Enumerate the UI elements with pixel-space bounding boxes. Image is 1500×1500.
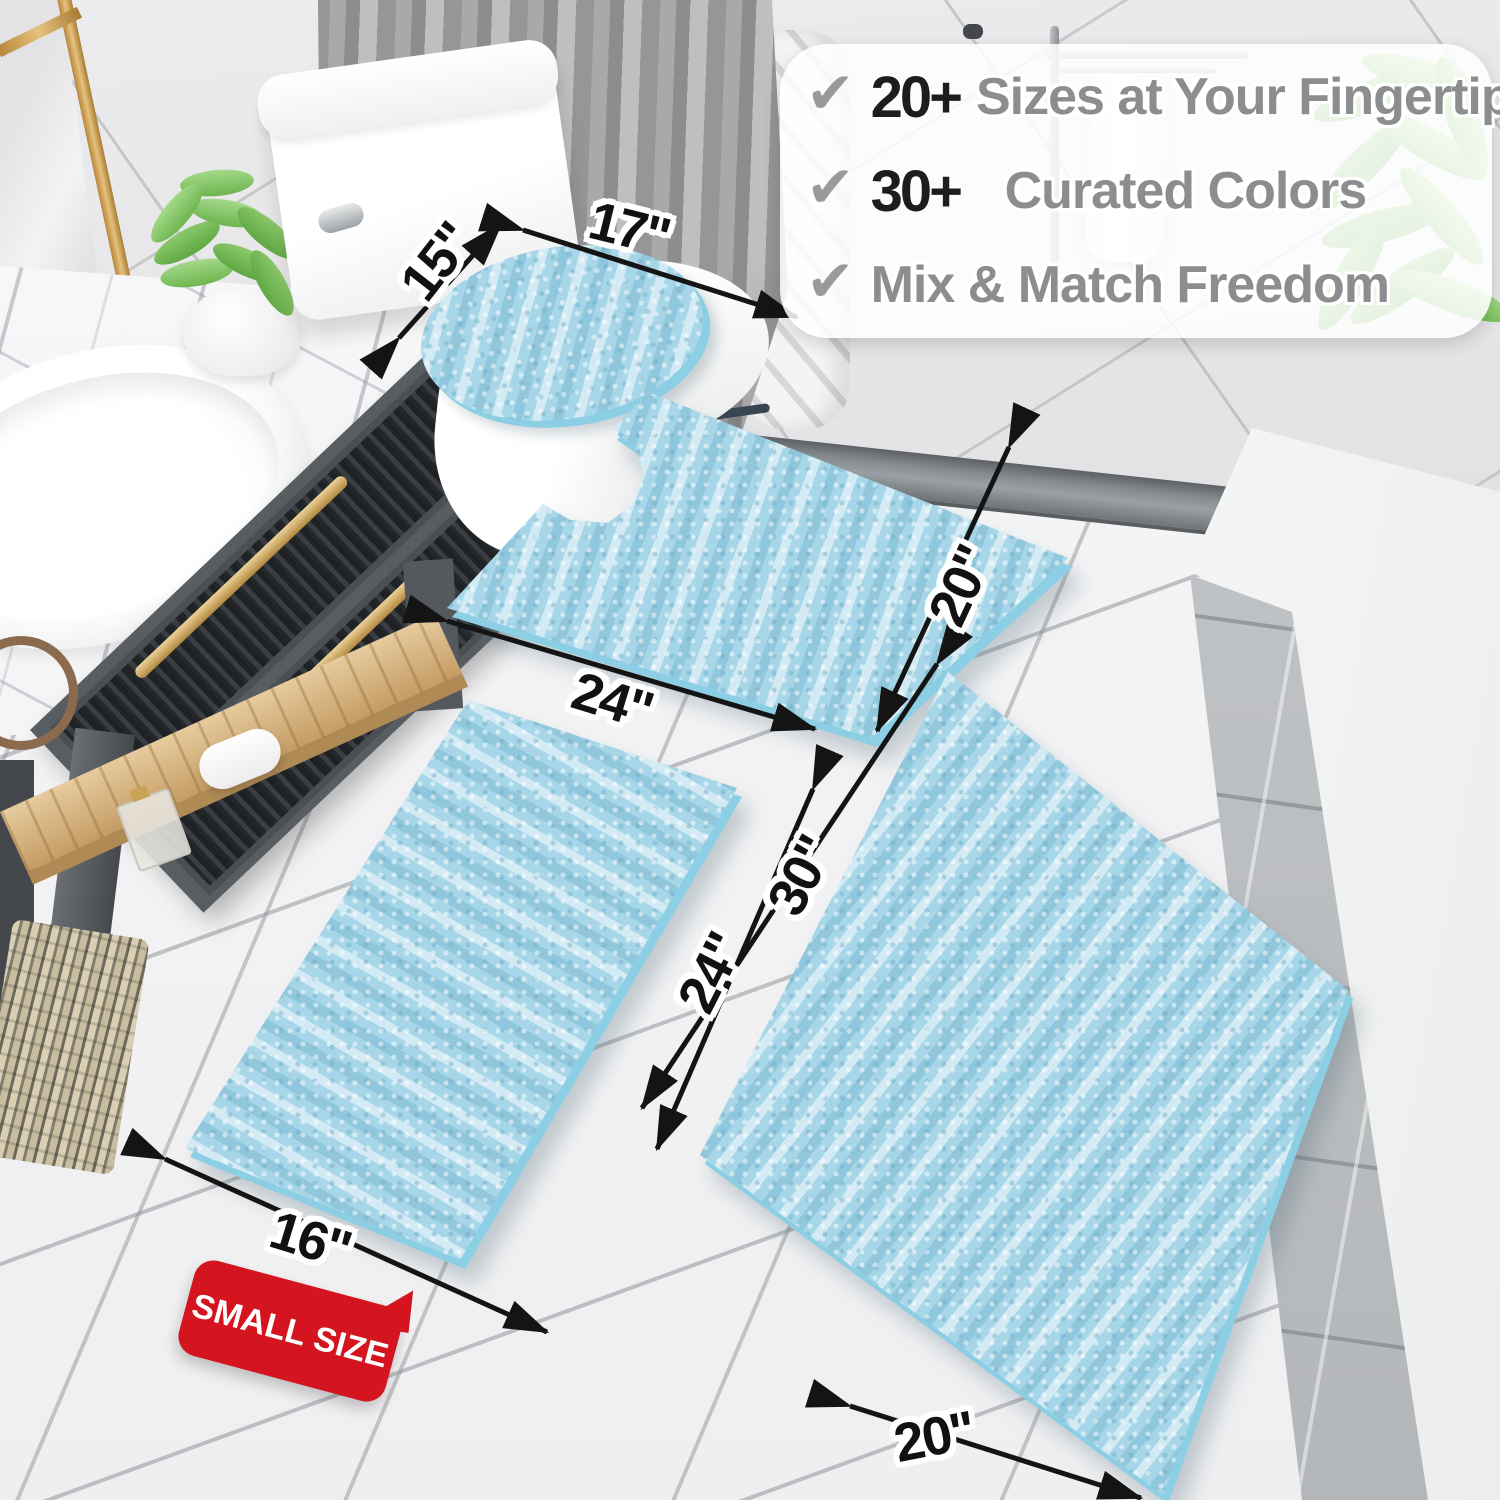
feature-label: Curated Colors [1005, 161, 1367, 221]
check-icon: ✔ [806, 153, 855, 221]
feature-row-sizes: ✔ 20+ Sizes at Your Fingertips [806, 54, 1492, 140]
product-image: 15" 17" 24" 20" 30" 24" 16" 20" SMALL SI… [0, 0, 1500, 1500]
feature-stat: 20+ [871, 64, 960, 131]
feature-stat: 30+ [871, 158, 989, 225]
feature-label: Mix & Match Freedom [871, 255, 1389, 315]
feature-banner: ✔ 20+ Sizes at Your Fingertips ✔ 30+ Cur… [780, 44, 1492, 338]
check-icon: ✔ [806, 59, 855, 127]
check-icon: ✔ [806, 247, 855, 315]
feature-row-colors: ✔ 30+ Curated Colors [806, 148, 1492, 234]
feature-label: Sizes at Your Fingertips [976, 67, 1500, 127]
small-size-badge-label: SMALL SIZE [188, 1286, 393, 1376]
feature-row-mix-match: ✔ Mix & Match Freedom [806, 242, 1492, 328]
